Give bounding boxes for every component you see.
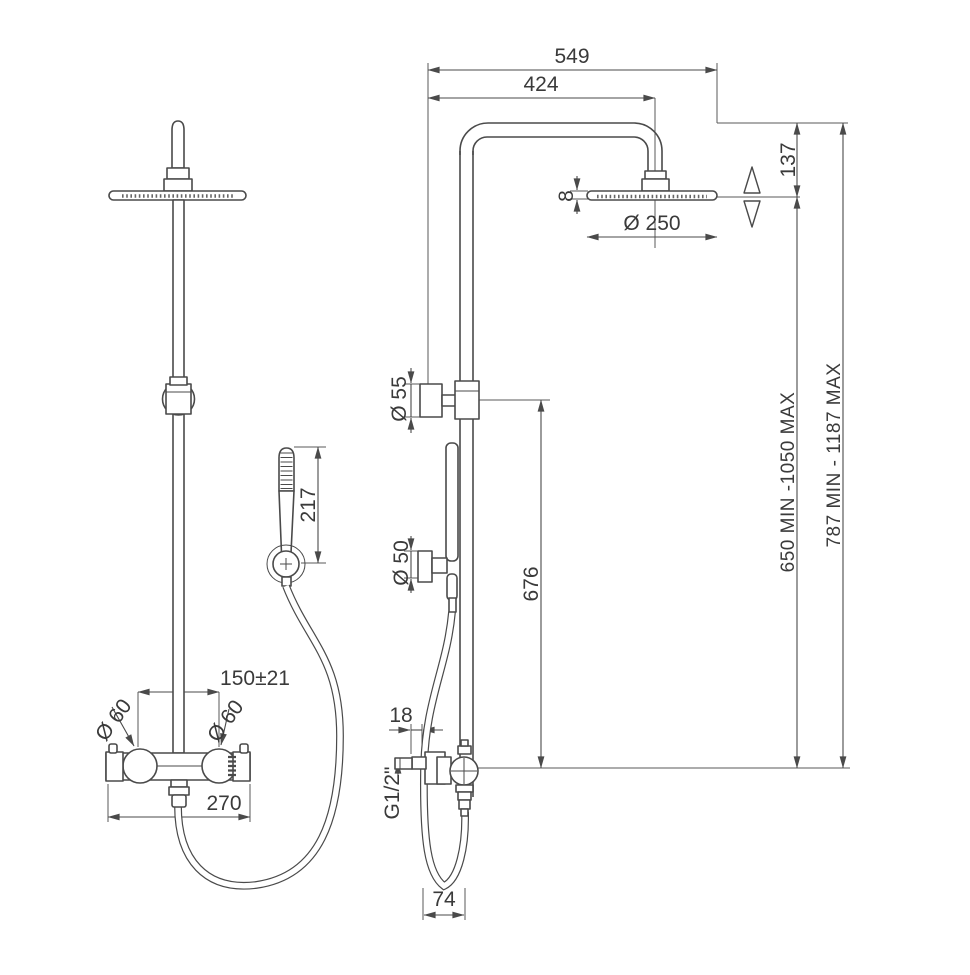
dim-inlet-spacing: 150±21 — [220, 667, 290, 690]
dim-head-drop: 137 — [777, 142, 800, 177]
hose-front — [178, 586, 340, 886]
dim-handshower-length: 217 — [297, 487, 320, 522]
gooseneck-inner — [473, 137, 648, 171]
arm-flange — [164, 179, 192, 191]
arm-end-pipe — [172, 121, 184, 168]
dim-valve-width: 270 — [206, 792, 241, 815]
upper-bracket-plate — [420, 384, 442, 417]
technical-drawing-page: 549 424 137 8 Ø 250 Ø 55 Ø 50 217 676 65… — [0, 0, 970, 970]
dim-head-diameter: Ø 250 — [623, 212, 680, 235]
head-nut-1 — [645, 171, 666, 179]
arm-nut — [167, 168, 189, 179]
diverter-knob-1 — [458, 746, 471, 754]
slider-tab — [170, 377, 187, 385]
dim-thread-size: G1/2" — [381, 767, 404, 820]
head-nut-2 — [642, 179, 669, 191]
dim-inlet-dia-right: Ø 60 — [203, 696, 248, 746]
dim-lower-bracket-dia: Ø 50 — [390, 540, 413, 586]
upper-bracket-clamp — [455, 381, 479, 419]
handshower-handle — [279, 491, 294, 553]
port-left — [109, 744, 117, 753]
dim-head-thickness: 8 — [555, 190, 578, 202]
valve-outlet-2 — [458, 792, 471, 800]
valve-stem — [412, 757, 426, 769]
handshower-side — [446, 443, 458, 561]
shower-column-drawing: 549 424 137 8 Ø 250 Ø 55 Ø 50 217 676 65… — [0, 0, 970, 970]
handshower-hose-connector — [447, 574, 457, 600]
valve-outlet-1 — [456, 785, 473, 792]
outlet-nut-2 — [169, 787, 189, 795]
hose-ferrule — [449, 598, 456, 612]
dim-overall-range: 787 MIN - 1187 MAX — [824, 362, 845, 547]
dim-bracket-to-valve: 676 — [520, 566, 543, 601]
adjust-down-arrow-icon — [744, 201, 760, 227]
valve-outlet-3 — [459, 800, 470, 809]
dim-upper-bracket-dia: Ø 55 — [388, 376, 411, 422]
dim-wall-offset: 18 — [389, 704, 412, 727]
mixer-knob-left — [123, 749, 157, 783]
slider-body — [166, 384, 191, 414]
dim-arm-projection: 424 — [523, 73, 558, 96]
gooseneck-outer — [460, 123, 662, 171]
outlet-nut-3 — [172, 795, 186, 807]
lower-bracket-plate — [418, 551, 432, 582]
port-right — [240, 744, 248, 753]
outlet-nut-1 — [171, 780, 187, 787]
lower-bracket-arm — [432, 558, 447, 573]
dim-total-width: 549 — [554, 45, 589, 68]
adjust-up-arrow-icon — [744, 167, 760, 193]
column-front — [173, 200, 184, 753]
dim-hose-loop-width: 74 — [432, 888, 456, 911]
valve-outlet-tip — [461, 809, 468, 816]
valve-hex — [437, 757, 451, 784]
diverter-knob-2 — [461, 740, 468, 746]
dim-column-range: 650 MIN -1050 MAX — [778, 392, 799, 573]
mixer-cap-left — [106, 752, 123, 781]
